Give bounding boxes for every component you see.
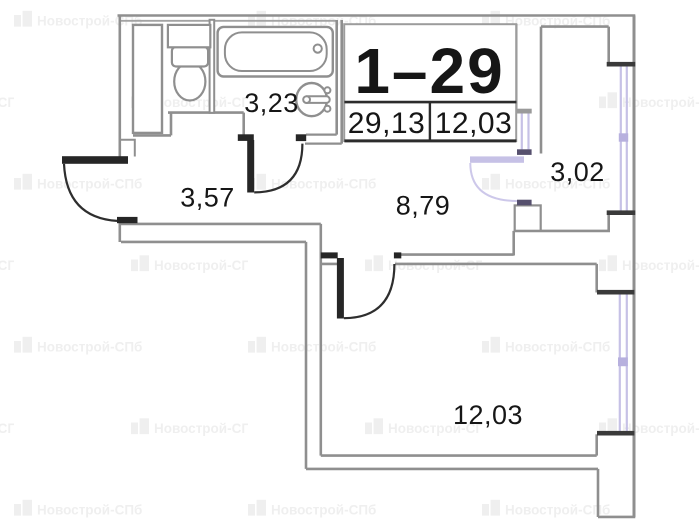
balcony-door-cap	[517, 200, 532, 206]
unit-number: 1–29	[354, 35, 504, 107]
floor-plan: Новострой-СПб Новострой-СПб	[0, 0, 700, 531]
bathroom-area-label: 3,23	[244, 88, 299, 118]
secondary-area-value: 12,03	[435, 107, 513, 140]
balcony-window-mullion	[619, 133, 628, 141]
duct-shaft	[133, 25, 162, 133]
title-block: 1–29 29,13 12,03	[344, 24, 516, 141]
living-room-area-label: 12,03	[453, 400, 523, 430]
kitchen-area-label: 8,79	[396, 191, 451, 221]
sink	[296, 83, 330, 116]
hallway-area-label: 3,57	[180, 183, 235, 213]
balcony-area-label: 3,02	[550, 157, 605, 187]
kitchen-window-cap	[517, 149, 532, 155]
bathtub	[218, 27, 333, 77]
living-room-window-mullion	[618, 357, 628, 366]
total-area-value: 29,13	[348, 107, 426, 140]
